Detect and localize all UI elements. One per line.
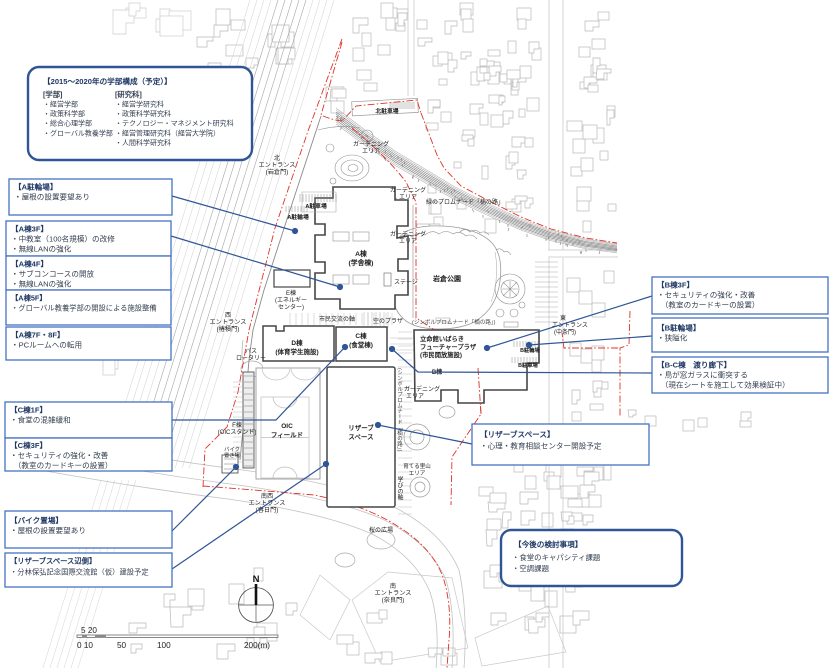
svg-text:(市民開放施設): (市民開放施設) [420, 350, 462, 359]
svg-text:・グローバル教養学部: ・グローバル教養学部 [43, 128, 113, 137]
svg-text:[学部]: [学部] [43, 90, 63, 99]
svg-text:・サブコンコースの開放: ・サブコンコースの開放 [11, 269, 95, 279]
svg-text:フューチャープラザ: フューチャープラザ [420, 342, 477, 351]
svg-text:(エネルギー: (エネルギー [275, 297, 307, 304]
svg-text:(体育学生施設): (体育学生施設) [275, 347, 318, 356]
svg-text:・中教室（100名規模）の改修: ・中教室（100名規模）の改修 [11, 234, 115, 244]
svg-text:・セキュリティの強化・改善: ・セキュリティの強化・改善 [10, 450, 109, 460]
svg-text:0 10: 0 10 [77, 641, 93, 650]
svg-text:A駐車場: A駐車場 [305, 202, 327, 210]
svg-text:桜の広場: 桜の広場 [369, 526, 393, 534]
svg-text:【A棟4F】: 【A棟4F】 [11, 259, 48, 269]
svg-text:ガーデニング: ガーデニング [404, 385, 440, 393]
svg-text:立命館いばらき: 立命館いばらき [420, 334, 464, 343]
svg-text:(OICスタンド): (OICスタンド) [218, 428, 257, 436]
svg-text:・無線LANの強化: ・無線LANの強化 [11, 279, 72, 289]
svg-text:エリア: エリア [362, 148, 380, 155]
svg-text:南西: 南西 [261, 492, 273, 500]
svg-text:・狭隘化: ・狭隘化 [657, 333, 688, 343]
svg-text:【今後の検討事項】: 【今後の検討事項】 [514, 539, 582, 549]
svg-text:南: 南 [390, 582, 396, 590]
svg-text:(学舎棟): (学舎棟) [349, 258, 374, 267]
svg-text:・食堂の混雑緩和: ・食堂の混雑緩和 [10, 415, 71, 425]
svg-text:ロータリー: ロータリー [236, 354, 266, 362]
svg-text:置き場: 置き場 [224, 451, 241, 459]
svg-text:（教室のカードキーの設置）: （教室のカードキーの設置） [10, 460, 113, 470]
svg-text:・屋根の設置要望あり: ・屋根の設置要望あり [14, 192, 90, 202]
svg-text:ガーデニング: ガーデニング [390, 186, 426, 194]
svg-text:センター): センター) [278, 303, 304, 311]
svg-text:北: 北 [274, 154, 281, 162]
svg-text:50: 50 [117, 641, 127, 650]
svg-text:・政策科学部: ・政策科学部 [43, 109, 85, 118]
svg-text:・空調課題: ・空調課題 [512, 564, 550, 573]
svg-text:・屋根の設置要望あり: ・屋根の設置要望あり [10, 525, 86, 535]
svg-text:A棟: A棟 [355, 249, 367, 258]
svg-text:(食堂棟): (食堂棟) [349, 340, 373, 349]
svg-text:(シンボルプロムナード「楠の路」): (シンボルプロムナード「楠の路」) [412, 318, 496, 326]
svg-text:F棟: F棟 [232, 421, 242, 429]
svg-text:エリア: エリア [406, 393, 424, 400]
svg-text:・経営学部: ・経営学部 [43, 99, 78, 108]
svg-text:エリア: エリア [399, 194, 417, 201]
svg-text:・グローバル教養学部の開設による施設整備: ・グローバル教養学部の開設による施設整備 [11, 304, 157, 313]
svg-text:リザーブ: リザーブ [348, 423, 374, 432]
svg-text:フィールド: フィールド [271, 431, 303, 439]
svg-text:・鳥が窓ガラスに衝突する: ・鳥が窓ガラスに衝突する [657, 370, 748, 380]
svg-text:・経営学研究科: ・経営学研究科 [115, 99, 164, 108]
svg-text:（現在シートを施工して効果検証中）: （現在シートを施工して効果検証中） [657, 380, 790, 390]
svg-text:・心理・教育相談センター開設予定: ・心理・教育相談センター開設予定 [480, 441, 602, 451]
svg-text:(シンボルプロムナード「楠の路」): (シンボルプロムナード「楠の路」) [396, 368, 403, 452]
svg-text:C棟: C棟 [355, 331, 367, 340]
svg-text:バス: バス [245, 348, 257, 355]
svg-text:【A棟3F】: 【A棟3F】 [11, 224, 48, 234]
svg-text:[研究科]: [研究科] [115, 90, 142, 99]
svg-text:・テクノロジー・マネジメント研究科: ・テクノロジー・マネジメント研究科 [115, 119, 234, 128]
svg-text:エントランス: エントランス [374, 590, 411, 597]
svg-text:・セキュリティの強化・改善: ・セキュリティの強化・改善 [657, 290, 756, 300]
svg-text:・分林保弘記念国際交流館（仮）建設予定: ・分林保弘記念国際交流館（仮）建設予定 [10, 568, 149, 577]
svg-text:・経営管理研究科（経営大学院）: ・経営管理研究科（経営大学院） [115, 128, 220, 137]
svg-text:D棟: D棟 [291, 338, 303, 347]
svg-text:【A棟7F・8F】: 【A棟7F・8F】 [11, 330, 65, 340]
svg-text:【リザーブスペース】: 【リザーブスペース】 [480, 429, 555, 439]
svg-text:・食堂のキャパシティ課題: ・食堂のキャパシティ課題 [512, 553, 601, 562]
svg-text:エントランス: エントランス [209, 319, 246, 326]
svg-text:A駐輪場: A駐輪場 [287, 213, 309, 221]
svg-text:西: 西 [225, 312, 231, 319]
svg-text:E棟: E棟 [286, 289, 296, 297]
svg-text:【リザーブスペース辺側】: 【リザーブスペース辺側】 [10, 557, 96, 566]
svg-text:エリア: エリア [399, 238, 417, 245]
svg-text:育てる里山: 育てる里山 [403, 462, 431, 470]
svg-text:【B駐輪場】: 【B駐輪場】 [657, 323, 700, 333]
svg-text:エリア: エリア [409, 470, 426, 477]
svg-text:【C棟1F】: 【C棟1F】 [10, 405, 47, 415]
svg-text:ステージ: ステージ [394, 279, 418, 286]
svg-text:東: 東 [560, 314, 566, 322]
svg-text:ガーデニング: ガーデニング [353, 140, 389, 148]
svg-text:OIC: OIC [281, 423, 293, 430]
svg-text:（教室のカードキーの設置）: （教室のカードキーの設置） [657, 300, 760, 310]
svg-text:(岩倉門): (岩倉門) [266, 168, 289, 176]
svg-text:【C棟3F】: 【C棟3F】 [10, 440, 47, 450]
svg-text:【B棟3F】: 【B棟3F】 [657, 280, 694, 290]
svg-text:【A棟5F】: 【A棟5F】 [11, 294, 47, 303]
svg-text:市民交流の軸: 市民交流の軸 [319, 315, 355, 323]
svg-text:(中条門): (中条門) [554, 328, 576, 336]
svg-text:200(m): 200(m) [244, 641, 270, 650]
svg-text:5 20: 5 20 [81, 626, 97, 635]
svg-text:エントランス: エントランス [258, 162, 295, 169]
svg-text:北駐車場: 北駐車場 [375, 107, 398, 115]
svg-text:岩倉公園: 岩倉公園 [432, 274, 461, 283]
svg-text:(椿積門): (椿積門) [217, 325, 240, 333]
svg-text:【2015～2020年の学部構成（予定）】: 【2015～2020年の学部構成（予定）】 [43, 76, 172, 86]
svg-text:・政策科学研究科: ・政策科学研究科 [115, 109, 171, 118]
svg-text:バイク: バイク [224, 446, 240, 453]
svg-text:ガーデニング: ガーデニング [390, 230, 426, 238]
svg-text:スペース: スペース [348, 433, 373, 441]
svg-text:【A駐輪場】: 【A駐輪場】 [14, 182, 57, 192]
svg-text:N: N [253, 574, 260, 585]
svg-text:・PCルームへの転用: ・PCルームへの転用 [11, 341, 82, 350]
svg-text:(奈良門): (奈良門) [382, 596, 405, 604]
svg-text:100: 100 [157, 641, 171, 650]
svg-text:空のプラザ: 空のプラザ [373, 317, 403, 325]
svg-text:学びの軸: 学びの軸 [396, 475, 403, 501]
svg-text:緑のプロムナード「楠の路」: 緑のプロムナード「楠の路」 [426, 198, 504, 206]
svg-text:【バイク置場】: 【バイク置場】 [10, 515, 63, 525]
svg-text:エントランス: エントランス [248, 500, 285, 507]
svg-text:B駐車場: B駐車場 [518, 361, 538, 369]
svg-text:【B-C棟 渡り廊下】: 【B-C棟 渡り廊下】 [657, 360, 731, 370]
svg-text:・無線LANの強化: ・無線LANの強化 [11, 244, 72, 254]
svg-text:・人間科学研究科: ・人間科学研究科 [115, 138, 171, 147]
svg-text:・総合心理学部: ・総合心理学部 [43, 119, 92, 128]
